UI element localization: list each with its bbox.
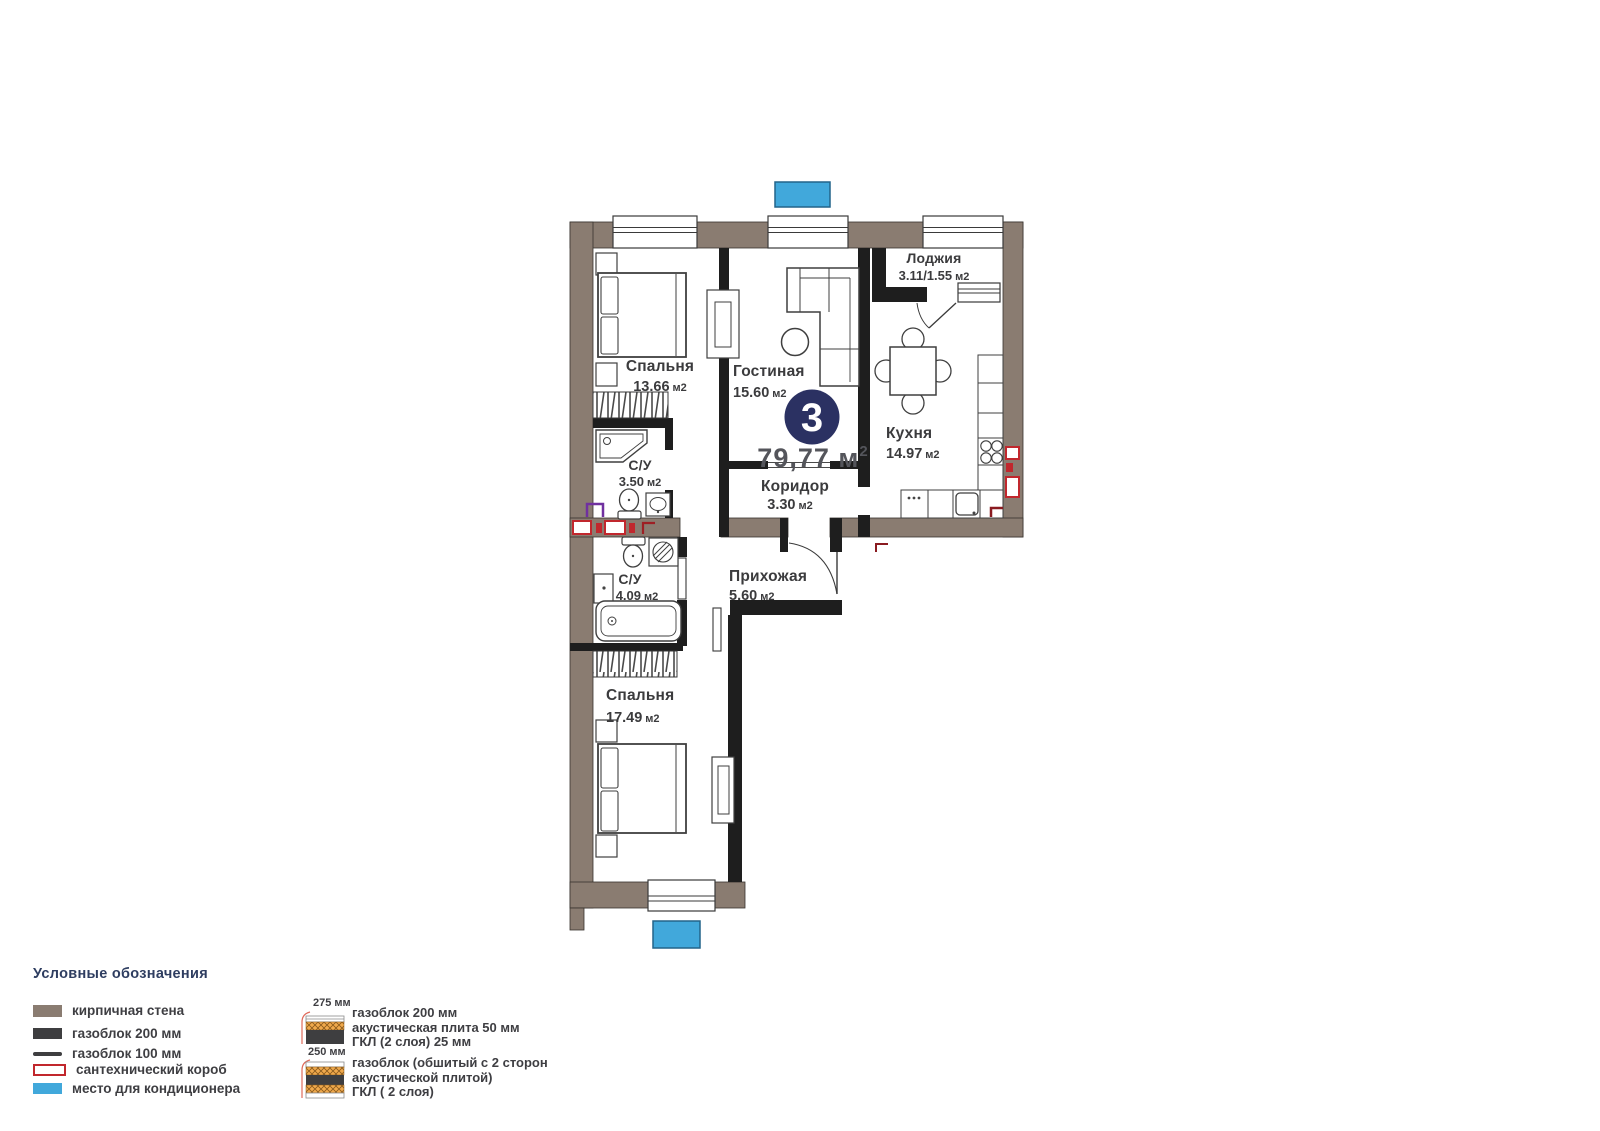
bedroom2-door-leaf bbox=[713, 608, 721, 651]
room-label-corridor: Коридор 3.30м2 bbox=[761, 478, 829, 513]
plumbing-box-icon bbox=[629, 523, 635, 533]
washing-machine-icon bbox=[649, 538, 678, 566]
wall-type-line: ГКЛ (2 слоя) 25 мм bbox=[352, 1035, 520, 1050]
bed-icon bbox=[598, 273, 686, 357]
room-area: 17.49м2 bbox=[606, 710, 660, 726]
room-name: Лоджия bbox=[907, 250, 962, 266]
room-name: Коридор bbox=[761, 478, 829, 495]
brick-wall-swatch bbox=[33, 1005, 62, 1017]
room-area: 3.30м2 bbox=[767, 497, 813, 513]
plumbing-box-icon bbox=[1006, 463, 1013, 472]
room-label-bath-small: С/У 3.50м2 bbox=[619, 457, 662, 489]
room-area: 15.60м2 bbox=[733, 385, 787, 401]
room-name: Гостиная bbox=[733, 363, 805, 380]
kitchen-counter bbox=[978, 355, 1003, 493]
room-name: Кухня bbox=[886, 425, 932, 442]
wall-bath2-bottom bbox=[570, 643, 683, 651]
legend-item: газоблок 200 мм bbox=[33, 1026, 181, 1041]
wall-type-275-swatch bbox=[298, 1010, 348, 1046]
legend-label: место для кондиционера bbox=[72, 1081, 240, 1096]
wall-type-line: газоблок 200 мм bbox=[352, 1006, 520, 1021]
room-label-loggia: Лоджия 3.11/1.55м2 bbox=[899, 250, 970, 283]
wall-corridor-kitchen-stub bbox=[858, 515, 870, 537]
entrance-jamb-left bbox=[780, 518, 788, 552]
gasblock-100-swatch bbox=[33, 1052, 62, 1056]
plumbing-box-icon bbox=[605, 521, 625, 534]
coffee-table-icon bbox=[782, 329, 809, 356]
legend-label: газоблок 200 мм bbox=[72, 1026, 181, 1041]
room-area: 3.11/1.55м2 bbox=[899, 268, 970, 283]
apartment-badge: 3 79,77 м2 bbox=[757, 390, 868, 474]
wall-left bbox=[570, 222, 593, 908]
legend-label: газоблок 100 мм bbox=[72, 1046, 181, 1061]
wall-stub-bottom-left bbox=[570, 908, 584, 930]
room-area: 13.66м2 bbox=[633, 379, 687, 395]
window-icon bbox=[923, 216, 1003, 248]
room-area: 5.60м2 bbox=[729, 588, 775, 604]
wall-type-dim: 250 мм bbox=[308, 1046, 346, 1058]
plumbing-box-icon bbox=[596, 523, 602, 533]
bed-icon bbox=[598, 744, 686, 833]
room-label-living: Гостиная 15.60м2 bbox=[733, 363, 805, 401]
tv-stand-icon bbox=[707, 290, 739, 358]
room-label-bedroom2: Спальня 17.49м2 bbox=[606, 687, 674, 726]
toilet-icon bbox=[618, 489, 641, 519]
legend-title: Условные обозначения bbox=[33, 966, 208, 982]
bedroom2-furniture bbox=[596, 720, 734, 857]
plumbing-box-icon bbox=[1006, 447, 1019, 459]
wall-loggia-bottom bbox=[872, 287, 927, 302]
room-area: 14.97м2 bbox=[886, 446, 940, 462]
plumbing-box-icon bbox=[573, 521, 591, 534]
dining-table-icon bbox=[890, 347, 936, 395]
wardrobe-hatch-icon bbox=[593, 651, 677, 677]
plumbing-box-swatch bbox=[33, 1064, 66, 1076]
room-label-kitchen: Кухня 14.97м2 bbox=[886, 425, 940, 462]
wall-type-desc: газоблок (обшитый с 2 сторон акустическо… bbox=[352, 1056, 548, 1100]
room-area: 3.50м2 bbox=[619, 474, 662, 489]
entrance-jamb-right bbox=[830, 518, 842, 552]
room-name: С/У bbox=[618, 571, 641, 587]
wall-type-line: акустической плитой) bbox=[352, 1071, 548, 1086]
wall-type-dim: 275 мм bbox=[313, 997, 351, 1009]
bathtub-icon bbox=[596, 601, 681, 641]
gasblock-200-swatch bbox=[33, 1028, 62, 1039]
wall-type-250-swatch bbox=[298, 1058, 348, 1100]
nightstand-icon bbox=[596, 253, 617, 275]
floor-plan-drawing: Спальня 13.66м2 Гостиная 15.60м2 Лоджия … bbox=[0, 0, 1600, 1131]
bath2-door-leaf bbox=[678, 558, 686, 599]
room-count-number: 3 bbox=[801, 396, 823, 440]
wall-bedroom2-right bbox=[728, 615, 742, 882]
room-label-hall: Прихожая 5.60м2 bbox=[729, 568, 807, 604]
loggia-door-arc bbox=[917, 303, 956, 328]
wall-type-line: акустическая плита 50 мм bbox=[352, 1021, 520, 1036]
wardrobe-hatch-icon bbox=[593, 392, 668, 418]
legend-item: газоблок 100 мм bbox=[33, 1046, 181, 1061]
sink-icon bbox=[646, 493, 670, 516]
room-name: Спальня bbox=[606, 687, 674, 704]
wall-bath1-top bbox=[593, 418, 673, 428]
plumbing-box-icon bbox=[1006, 477, 1019, 497]
ac-place-icon bbox=[653, 921, 700, 948]
dresser-icon bbox=[712, 757, 734, 823]
wall-type-desc: газоблок 200 мм акустическая плита 50 мм… bbox=[352, 1006, 520, 1050]
kitchen-counter-bottom bbox=[901, 490, 1003, 518]
legend-item: кирпичная стена bbox=[33, 1003, 184, 1018]
wall-type-line: ГКЛ ( 2 слоя) bbox=[352, 1085, 548, 1100]
dining-set-icon bbox=[875, 328, 951, 414]
nightstand-icon bbox=[596, 363, 617, 386]
room-label-bedroom1: Спальня 13.66м2 bbox=[626, 358, 694, 395]
ac-place-icon bbox=[775, 182, 830, 207]
plumbing-box-icon bbox=[876, 544, 888, 552]
wall-type-line: газоблок (обшитый с 2 сторон bbox=[352, 1056, 548, 1071]
legend-item: место для кондиционера bbox=[33, 1081, 240, 1096]
room-name: Прихожая bbox=[729, 568, 807, 585]
ac-place-swatch bbox=[33, 1083, 62, 1094]
window-icon bbox=[648, 880, 715, 911]
room-name: С/У bbox=[628, 457, 651, 473]
window-icon bbox=[958, 283, 1000, 302]
room-area: 4.09м2 bbox=[616, 588, 659, 603]
legend-item: сантехнический короб bbox=[33, 1062, 227, 1077]
window-icon bbox=[613, 216, 697, 248]
room-name: Спальня bbox=[626, 358, 694, 375]
legend-label: сантехнический короб bbox=[76, 1062, 227, 1077]
sink-icon bbox=[594, 574, 613, 603]
legend-label: кирпичная стена bbox=[72, 1003, 184, 1018]
toilet-icon bbox=[622, 537, 645, 567]
nightstand-icon bbox=[596, 835, 617, 857]
wall-bath1-right-a bbox=[665, 428, 673, 450]
wall-hall-top bbox=[721, 518, 788, 537]
kitchen-furniture bbox=[875, 328, 1003, 518]
window-icon bbox=[768, 216, 848, 248]
knobs-dots bbox=[908, 497, 921, 500]
room-label-bath-big: С/У 4.09м2 bbox=[616, 571, 659, 603]
floor-plan-page: Спальня 13.66м2 Гостиная 15.60м2 Лоджия … bbox=[0, 0, 1600, 1131]
total-area: 79,77 м2 bbox=[757, 443, 868, 473]
